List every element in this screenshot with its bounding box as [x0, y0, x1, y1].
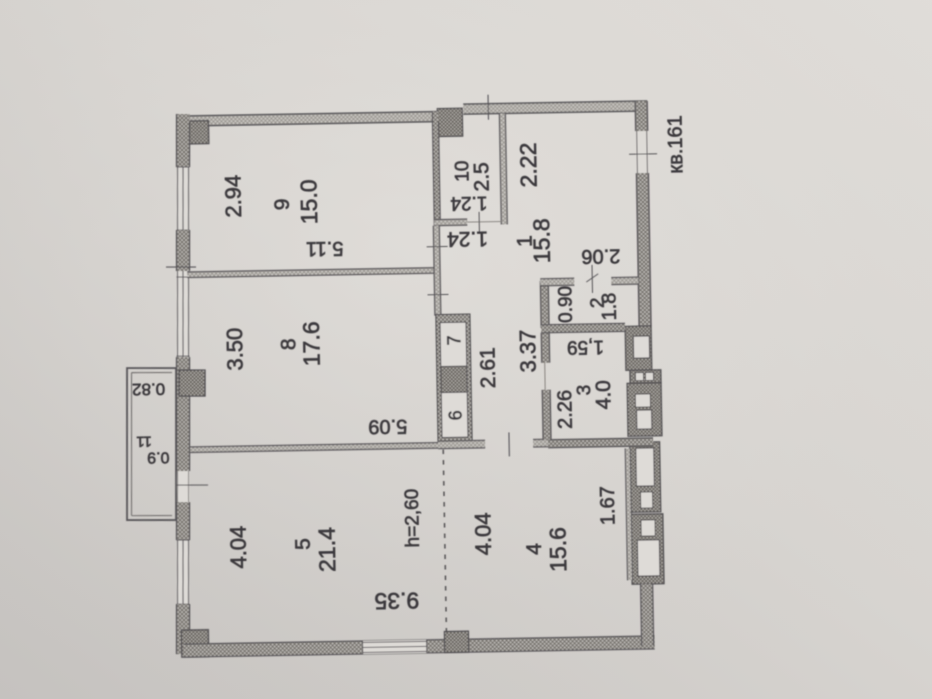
svg-text:9.35: 9.35 [374, 587, 419, 614]
svg-text:9: 9 [271, 198, 294, 210]
svg-text:0.90: 0.90 [555, 286, 577, 323]
svg-text:2.22: 2.22 [515, 142, 542, 187]
svg-text:4.04: 4.04 [470, 512, 496, 555]
svg-text:h=2,60: h=2,60 [402, 489, 424, 548]
svg-text:4.04: 4.04 [226, 526, 252, 569]
svg-text:8: 8 [277, 338, 300, 350]
svg-text:2.61: 2.61 [476, 347, 500, 388]
svg-text:15.6: 15.6 [545, 527, 572, 572]
svg-text:3.37: 3.37 [515, 329, 541, 372]
svg-text:2.94: 2.94 [220, 175, 246, 218]
svg-text:0.9: 0.9 [147, 448, 170, 465]
svg-text:15.0: 15.0 [295, 179, 322, 224]
svg-text:4.0: 4.0 [592, 380, 616, 410]
svg-text:2.06: 2.06 [581, 244, 620, 267]
svg-text:21.4: 21.4 [314, 527, 341, 572]
svg-text:0.82: 0.82 [132, 379, 165, 399]
svg-text:1.67: 1.67 [597, 486, 620, 525]
svg-text:1.24: 1.24 [450, 192, 488, 214]
svg-text:7: 7 [444, 335, 464, 345]
svg-text:1,59: 1,59 [567, 336, 604, 358]
svg-text:15.8: 15.8 [528, 218, 555, 263]
svg-text:5.11: 5.11 [306, 237, 344, 260]
svg-text:1.24: 1.24 [447, 227, 489, 251]
svg-text:2.5: 2.5 [470, 162, 494, 192]
svg-text:3.50: 3.50 [222, 328, 248, 371]
svg-text:1.8: 1.8 [599, 293, 621, 321]
svg-text:5: 5 [292, 538, 315, 550]
svg-text:кв.161: кв.161 [664, 115, 687, 174]
svg-text:6: 6 [446, 410, 466, 420]
svg-text:17.6: 17.6 [298, 321, 325, 366]
svg-text:4: 4 [523, 543, 546, 555]
svg-text:11: 11 [136, 433, 152, 450]
svg-text:5.09: 5.09 [368, 415, 407, 438]
